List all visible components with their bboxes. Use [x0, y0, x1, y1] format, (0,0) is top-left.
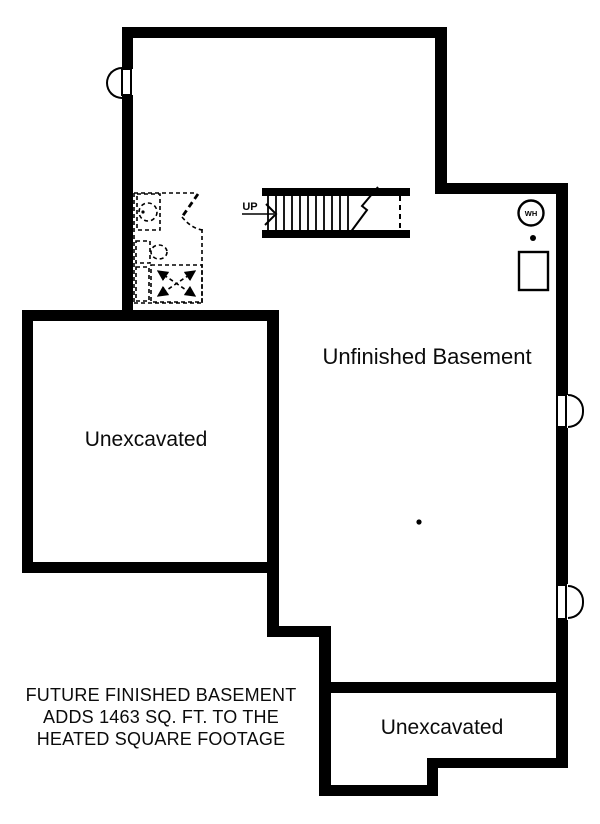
- note-line-1: FUTURE FINISHED BASEMENT: [26, 684, 297, 706]
- room-label-unfinished-basement: Unfinished Basement: [322, 344, 531, 370]
- lavatory-drain-dot-icon: [141, 210, 144, 213]
- stair-treads: [268, 196, 348, 230]
- water-heater-label: WH: [525, 209, 538, 218]
- toilet-bowl-icon: [151, 245, 167, 259]
- staircase: [242, 187, 410, 238]
- door-swing-arc-icon: [182, 217, 203, 230]
- stair-up-label: UP: [242, 201, 257, 213]
- room-label-unexcavated-bottom: Unexcavated: [381, 716, 504, 740]
- toilet-tank-icon: [136, 241, 150, 263]
- stair-stringer-bottom: [262, 230, 410, 238]
- utility-dot-icon: [530, 235, 536, 241]
- door-leaf-icon: [182, 194, 198, 217]
- bath-fixture-rect-icon: [136, 267, 149, 301]
- equipment-pad-icon: [519, 252, 548, 290]
- basement-floor-plan: WH Unfinished Basement Unexcavated Unexc…: [0, 0, 600, 824]
- note-line-3: HEATED SQUARE FOOTAGE: [26, 728, 297, 750]
- stair-stringer-top: [262, 188, 410, 196]
- future-basement-note: FUTURE FINISHED BASEMENT ADDS 1463 SQ. F…: [26, 684, 297, 750]
- future-bath-rough-in: [134, 193, 203, 303]
- room-label-unexcavated-left: Unexcavated: [85, 428, 208, 452]
- floor-drain-dot-icon: [416, 519, 421, 524]
- note-line-2: ADDS 1463 SQ. FT. TO THE: [26, 706, 297, 728]
